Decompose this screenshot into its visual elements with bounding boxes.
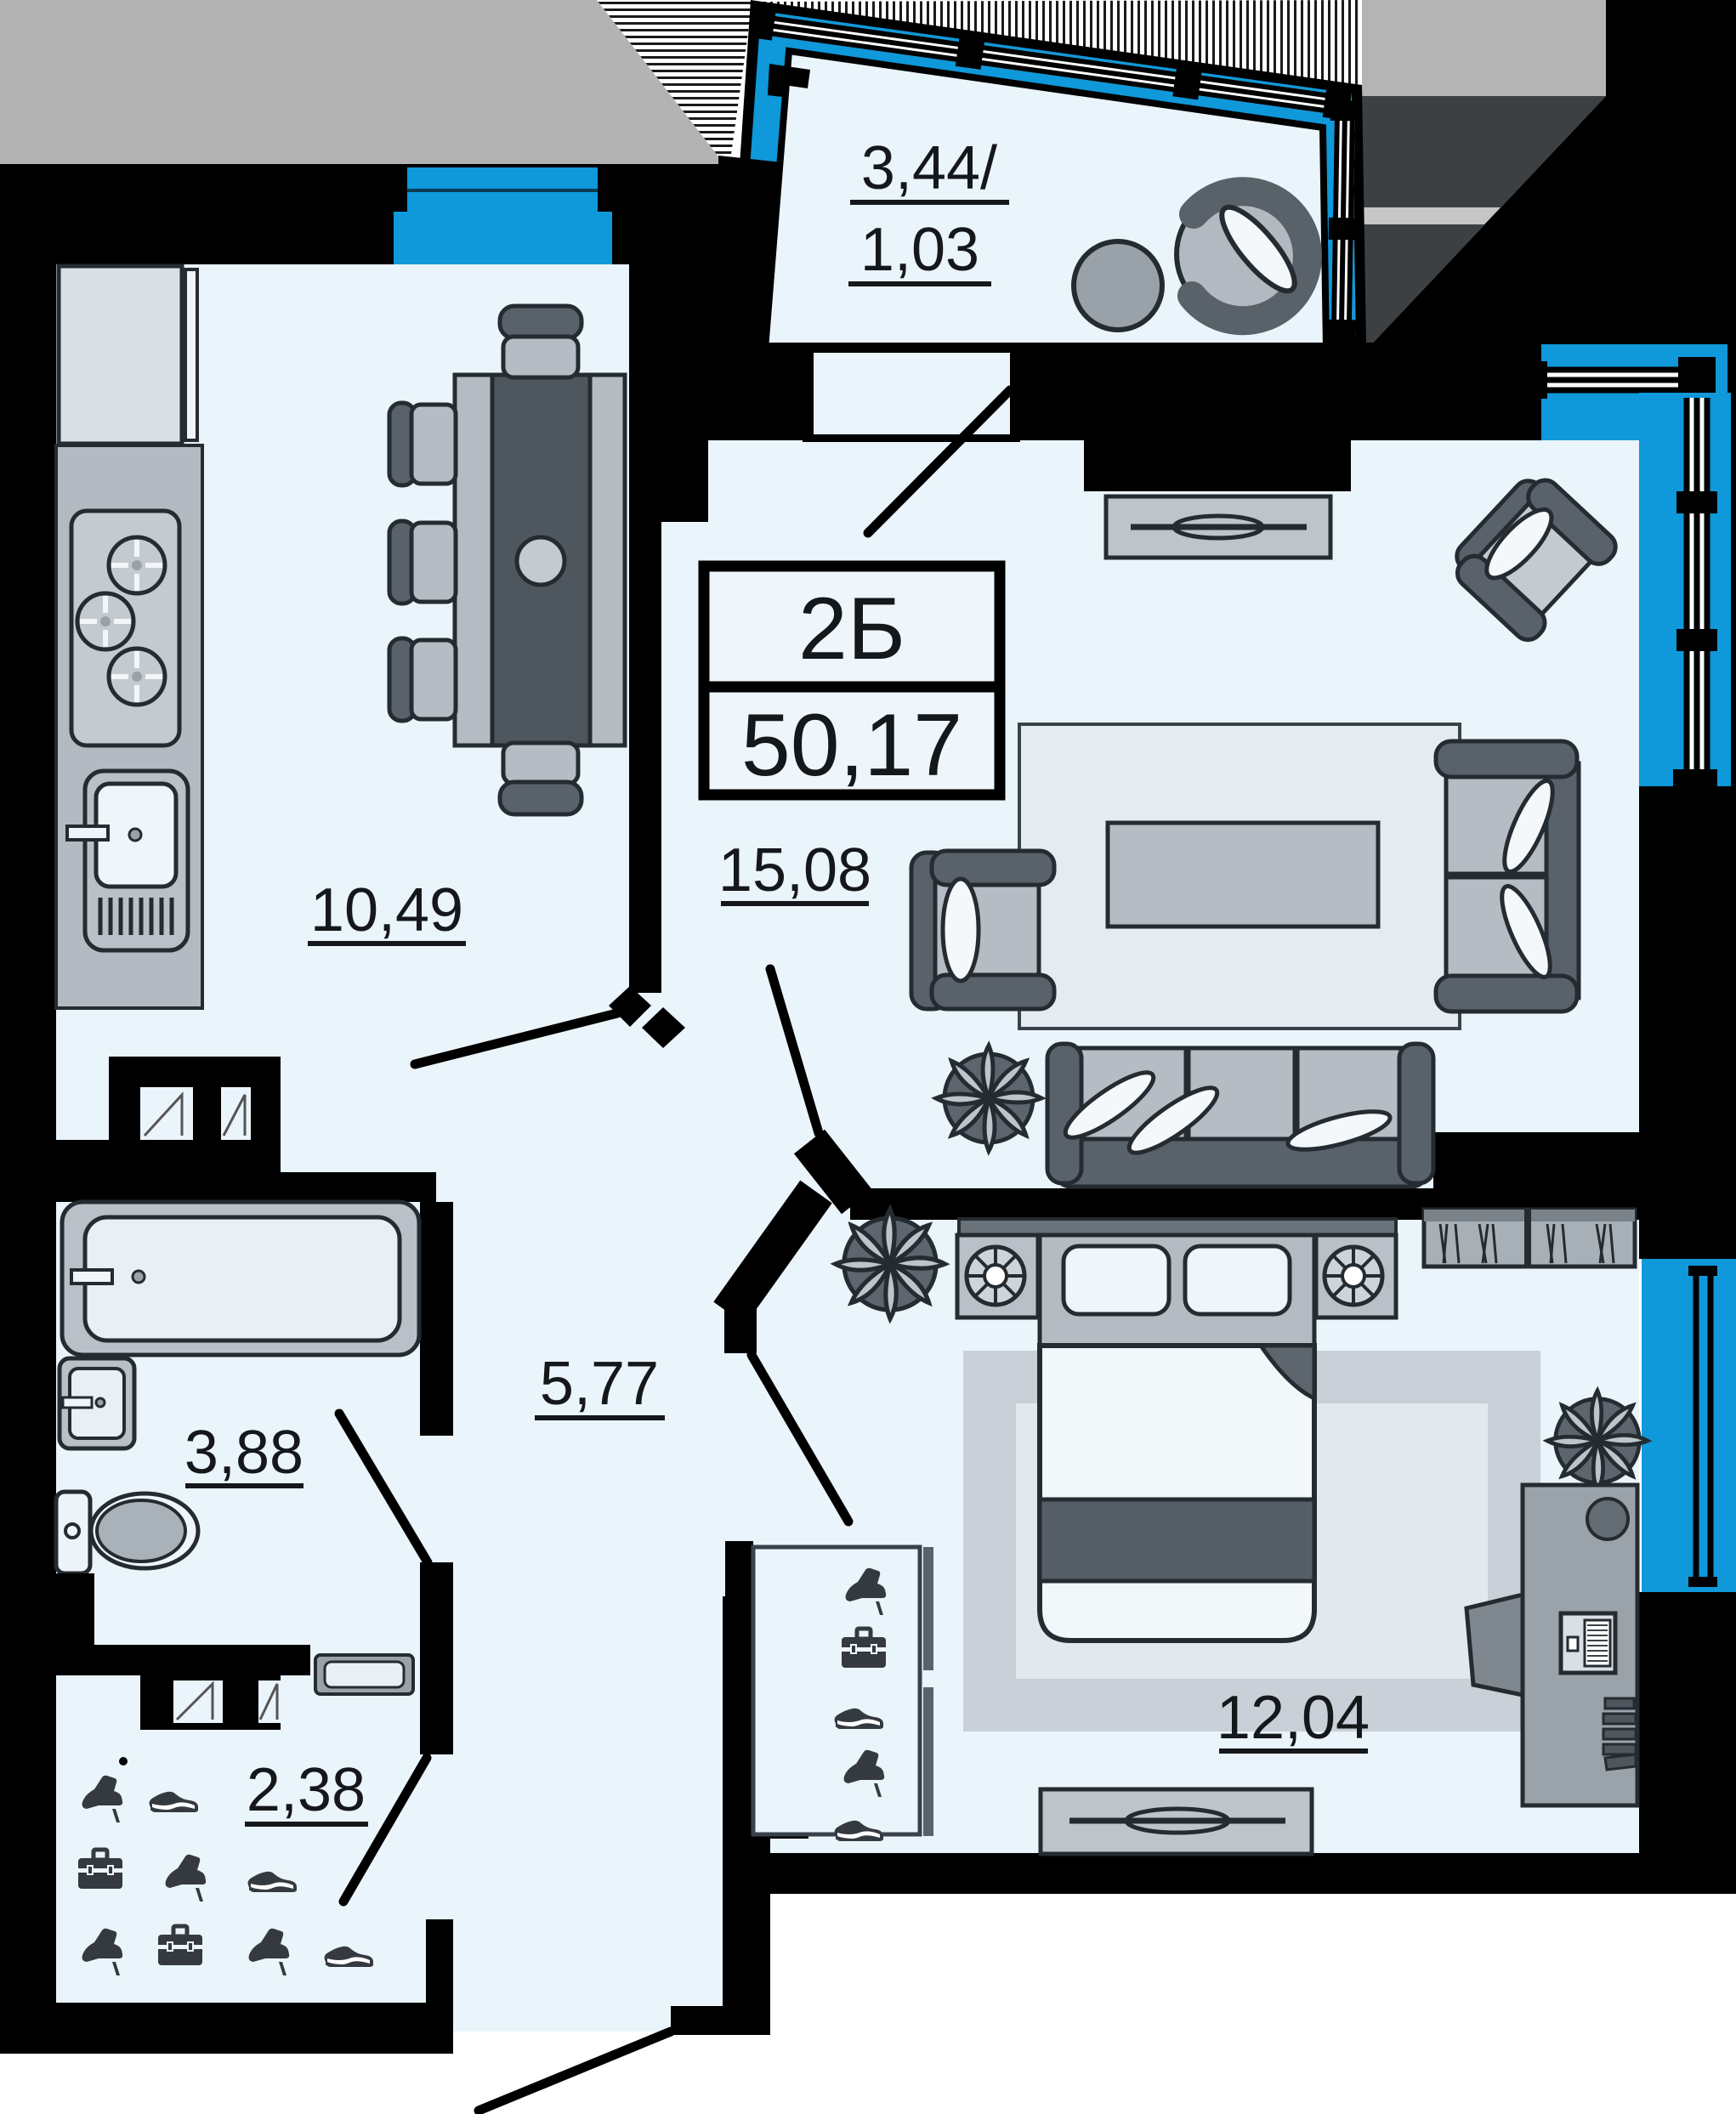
svg-text:10,49: 10,49 [310, 876, 463, 944]
svg-text:15,08: 15,08 [718, 836, 871, 904]
svg-text:1,03: 1,03 [860, 216, 979, 284]
svg-text:2Б: 2Б [798, 580, 905, 678]
svg-text:5,77: 5,77 [540, 1350, 659, 1418]
svg-text:2,38: 2,38 [247, 1756, 366, 1824]
svg-text:12,04: 12,04 [1217, 1684, 1370, 1752]
svg-text:3,44/: 3,44/ [861, 134, 997, 202]
svg-text:3,88: 3,88 [184, 1419, 304, 1487]
svg-text:50,17: 50,17 [741, 696, 962, 795]
